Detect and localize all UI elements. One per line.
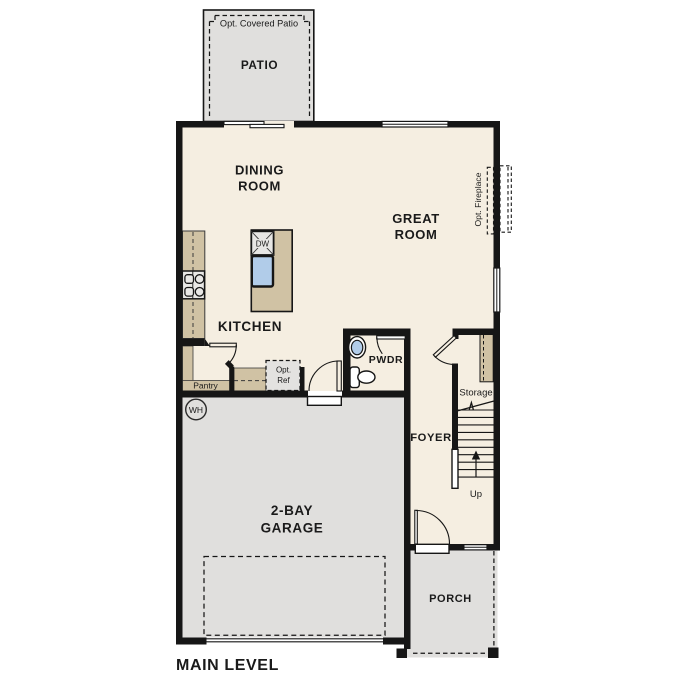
svg-text:Pantry: Pantry — [193, 381, 218, 391]
svg-text:Opt. Fireplace: Opt. Fireplace — [473, 172, 483, 226]
svg-text:DW: DW — [256, 240, 270, 249]
svg-text:Opt.: Opt. — [276, 366, 291, 375]
svg-text:KITCHEN: KITCHEN — [218, 319, 282, 334]
svg-text:PATIO: PATIO — [241, 58, 278, 72]
svg-text:WH: WH — [189, 405, 203, 415]
svg-text:FOYER: FOYER — [410, 432, 452, 444]
svg-text:2-BAY: 2-BAY — [271, 503, 313, 518]
svg-text:PORCH: PORCH — [429, 593, 472, 605]
svg-text:GARAGE: GARAGE — [261, 521, 324, 536]
svg-text:Storage: Storage — [459, 388, 492, 399]
svg-text:PWDR: PWDR — [369, 354, 403, 366]
svg-text:GREAT: GREAT — [392, 211, 440, 226]
svg-text:DINING: DINING — [235, 163, 284, 178]
svg-text:ROOM: ROOM — [395, 227, 438, 242]
svg-text:Ref: Ref — [277, 376, 290, 385]
svg-text:Opt. Covered Patio: Opt. Covered Patio — [220, 19, 298, 29]
svg-text:Up: Up — [470, 489, 482, 500]
svg-text:MAIN LEVEL: MAIN LEVEL — [176, 657, 279, 674]
svg-text:ROOM: ROOM — [238, 179, 281, 194]
